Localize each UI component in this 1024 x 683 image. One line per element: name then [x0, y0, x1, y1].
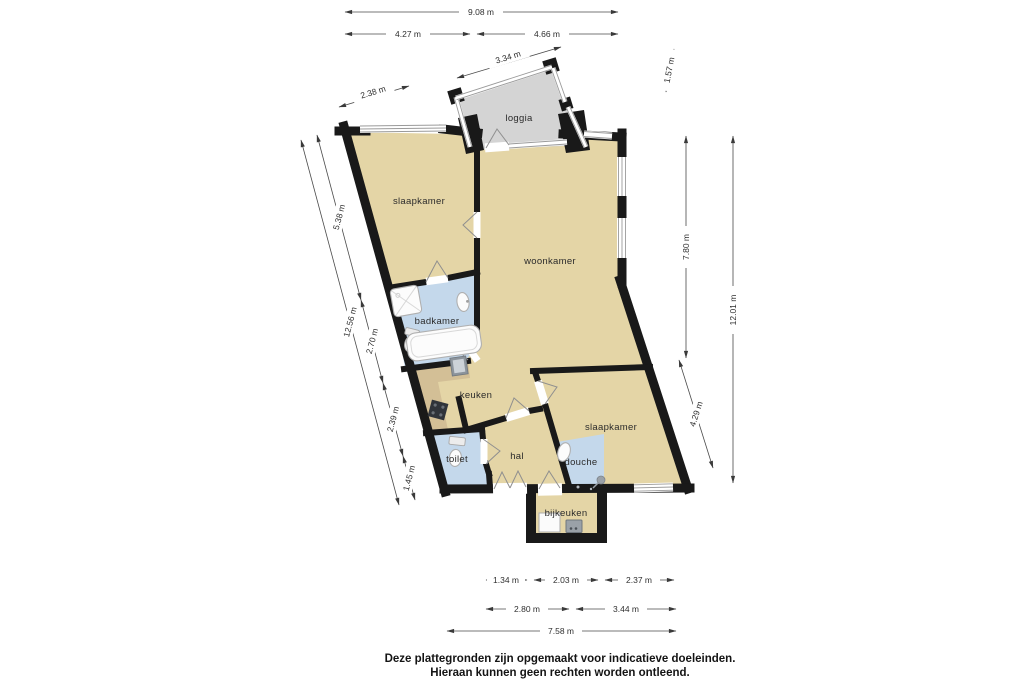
- dim-upper-left: 2.38 m: [339, 80, 409, 107]
- dim-bottom-total: 7.58 m: [447, 625, 676, 637]
- window-living-right-1: [619, 157, 626, 196]
- dim-right-2: 4.29 m: [679, 360, 713, 468]
- kitchen-sink: [450, 356, 468, 376]
- dim-left-4: 1.45 m: [398, 456, 419, 500]
- dim-bottom-row2-1: 2.80 m: [486, 603, 569, 615]
- svg-text:2.37 m: 2.37 m: [626, 575, 652, 585]
- label-bathroom: badkamer: [415, 316, 460, 327]
- dim-top-right: 4.66 m: [477, 28, 618, 40]
- dim-left-2: 2.70 m: [361, 300, 383, 383]
- label-bedroom-1: slaapkamer: [393, 196, 445, 207]
- wall-bedroom2-top: [533, 367, 650, 371]
- dim-top-left: 4.27 m: [345, 28, 470, 40]
- dim-bottom-row1-2: 2.03 m: [534, 574, 598, 586]
- svg-text:3.44 m: 3.44 m: [613, 604, 639, 614]
- dim-left-3: 2.39 m: [382, 383, 404, 456]
- label-living: woonkamer: [523, 256, 576, 267]
- svg-text:12.01 m: 12.01 m: [728, 295, 738, 326]
- label-loggia: loggia: [505, 113, 533, 124]
- dim-bottom-row1-3: 2.37 m: [605, 574, 674, 586]
- label-kitchen: keuken: [460, 390, 492, 401]
- window-living-right-2: [619, 218, 626, 258]
- svg-text:2.03 m: 2.03 m: [553, 575, 579, 585]
- dim-bottom-row1-1: 1.34 m: [486, 574, 527, 586]
- label-hall: hal: [510, 451, 524, 462]
- shower-tray: [390, 285, 422, 317]
- svg-text:4.66 m: 4.66 m: [534, 29, 560, 39]
- svg-text:7.80 m: 7.80 m: [681, 234, 691, 260]
- label-bedroom-2: slaapkamer: [585, 422, 637, 433]
- disclaimer-line-1: Deze plattegronden zijn opgemaakt voor i…: [385, 653, 736, 665]
- floorplan-page: loggia slaapkamer woonkamer badkamer keu…: [0, 0, 1024, 683]
- svg-text:9.08 m: 9.08 m: [468, 7, 494, 17]
- disclaimer-line-2: Hieraan kunnen geen rechten worden ontle…: [430, 667, 689, 679]
- utility-appliance: [566, 520, 582, 533]
- dim-top-total: 9.08 m: [345, 6, 618, 18]
- svg-text:2.80 m: 2.80 m: [514, 604, 540, 614]
- label-shower: douche: [565, 457, 598, 468]
- dim-right-total: 12.01 m: [727, 136, 739, 483]
- dim-loggia-depth: 1.57 m: [659, 48, 679, 92]
- label-utility: bijkeuken: [545, 508, 588, 519]
- disclaimer: Deze plattegronden zijn opgemaakt voor i…: [385, 653, 736, 679]
- label-toilet: toilet: [446, 454, 468, 465]
- window-top-right: [584, 132, 612, 139]
- dim-right-1: 7.80 m: [680, 136, 692, 358]
- svg-text:1.34 m: 1.34 m: [493, 575, 519, 585]
- floorplan-svg: loggia slaapkamer woonkamer badkamer keu…: [0, 0, 1024, 683]
- dim-bottom-row2-2: 3.44 m: [576, 603, 676, 615]
- svg-text:4.27 m: 4.27 m: [395, 29, 421, 39]
- svg-text:7.58 m: 7.58 m: [548, 626, 574, 636]
- window-bedroom1-top: [360, 125, 446, 132]
- window-bedroom2-bottom: [634, 484, 673, 491]
